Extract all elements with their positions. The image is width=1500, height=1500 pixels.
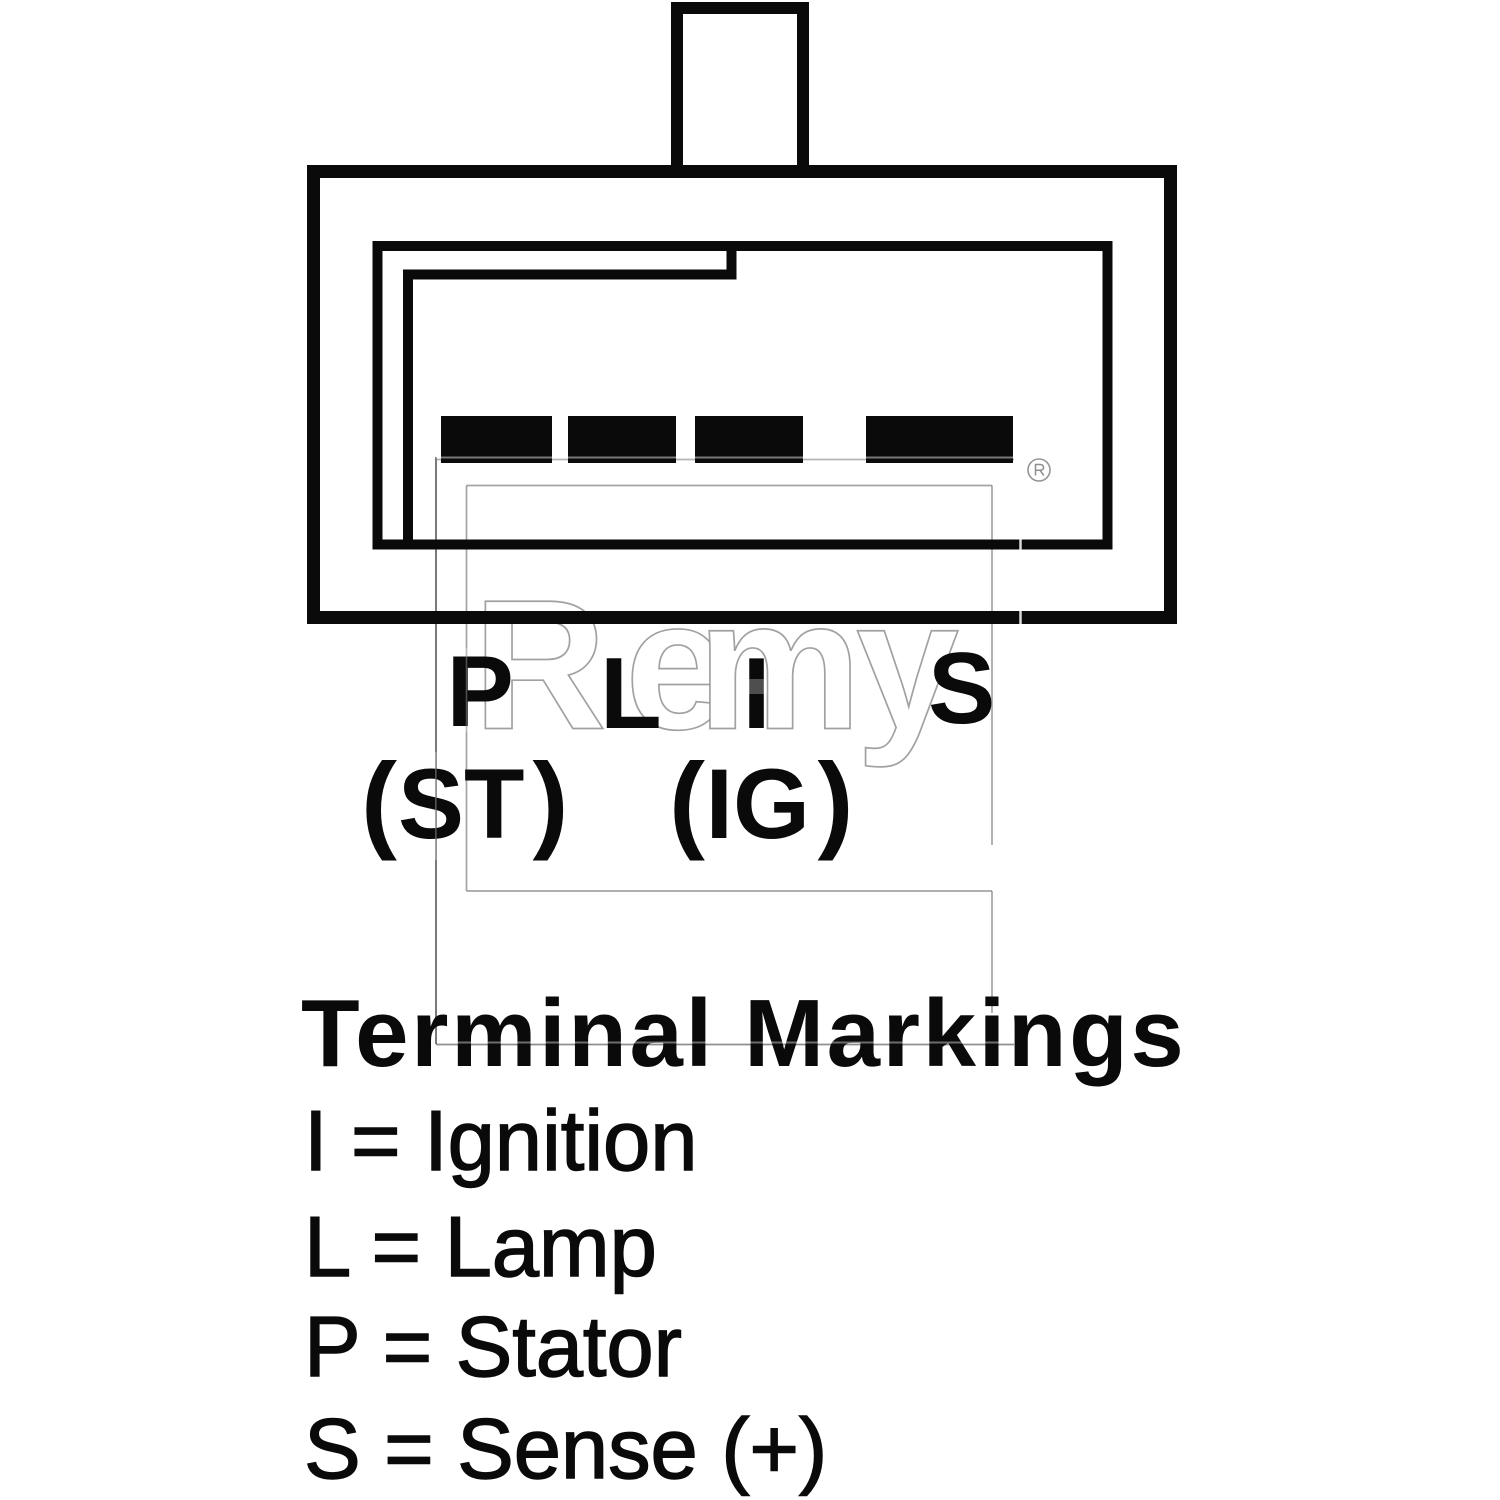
svg-text:(: (	[669, 740, 705, 861]
svg-text:L = Lamp: L = Lamp	[304, 1200, 657, 1295]
svg-text:P: P	[447, 636, 514, 748]
svg-text:Remy: Remy	[473, 563, 959, 769]
svg-text:): )	[818, 740, 854, 861]
svg-text:P = Stator: P = Stator	[304, 1300, 682, 1395]
svg-text:): )	[533, 740, 569, 861]
svg-text:S = Sense (+): S = Sense (+)	[304, 1402, 827, 1497]
svg-text:Terminal Markings: Terminal Markings	[301, 980, 1186, 1087]
svg-text:(: (	[361, 740, 397, 861]
svg-text:IG: IG	[706, 748, 811, 859]
svg-text:S: S	[928, 633, 995, 745]
svg-text:L: L	[600, 638, 662, 750]
svg-text:I = Ignition: I = Ignition	[304, 1094, 697, 1189]
svg-text:ST: ST	[398, 748, 525, 859]
